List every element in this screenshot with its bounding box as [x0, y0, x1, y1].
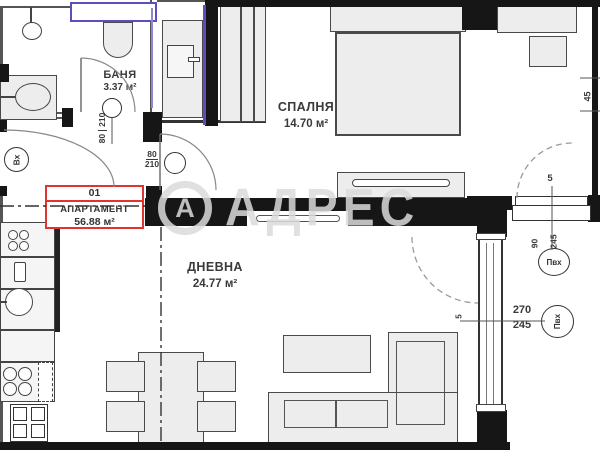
- wardrobe-door-handle: [188, 57, 200, 62]
- shaft-purple-rect: [70, 2, 157, 22]
- wall-bath-door-jamb: [62, 108, 73, 127]
- wardrobe-panel-line-1: [240, 4, 242, 122]
- apartment-type: АПАРТАМЕНТ: [47, 204, 142, 215]
- wardrobe-panel-line-2: [253, 4, 255, 122]
- apartment-label-box: 01 АПАРТАМЕНТ 56.88 м²: [45, 185, 144, 229]
- kitchen-fan-icon: [8, 241, 18, 251]
- coffee-table: [283, 335, 371, 373]
- sofa-cushion: [336, 400, 388, 428]
- wall-dim-45: 45: [584, 83, 597, 111]
- kitchen-divider-3: [0, 329, 55, 331]
- bedroom-door-circle: [164, 152, 186, 174]
- bed: [335, 32, 461, 136]
- bedroom-door-height: 210: [145, 160, 159, 169]
- side-window-material-circle: Пвх: [538, 248, 570, 276]
- wall-top-left-thin: [0, 6, 70, 8]
- balcony-door-cap: [476, 233, 506, 240]
- cabinet-cell: [31, 407, 45, 421]
- dining-table: [138, 352, 204, 443]
- living-name: ДНЕВНА: [185, 261, 245, 274]
- balcony-window-material-circle: Пвх: [541, 305, 574, 338]
- balcony-door-glass: [493, 243, 494, 404]
- bedroom-name: СПАЛНЯ: [274, 101, 338, 114]
- wall-top-closet-thin: [157, 0, 205, 2]
- entrance-circle: Вх: [4, 147, 29, 172]
- balcony-window-height: 245: [505, 320, 539, 332]
- balcony-window-width: 270: [505, 305, 539, 317]
- side-window-inner: [512, 205, 591, 221]
- sofa-chaise-cushion: [396, 341, 445, 425]
- wall-left-block: [0, 64, 9, 82]
- balcony-door-swing-arc: [412, 237, 478, 303]
- kitchen-divider-2: [0, 288, 55, 290]
- bathroom-name: БАНЯ: [92, 70, 148, 82]
- side-window-offset: 5: [543, 174, 557, 184]
- washing-machine-line: [0, 96, 15, 98]
- balcony-door-glass: [486, 243, 487, 404]
- balcony-door-frame: [478, 237, 480, 410]
- stove-burner: [18, 367, 32, 381]
- nightstand-unit: [497, 5, 577, 33]
- kitchen-divider-1: [0, 256, 55, 258]
- shaft-purple-line: [203, 5, 206, 125]
- wall-top: [205, 0, 600, 7]
- dining-chair: [106, 361, 145, 392]
- washing-machine-drum: [15, 83, 51, 111]
- wall-balcony-corner-a: [467, 196, 512, 210]
- entrance-label: Вх: [11, 154, 21, 165]
- dining-chair: [197, 401, 236, 432]
- sofa-cushion: [284, 400, 336, 428]
- bedroom-door-dims: 80 210: [140, 150, 164, 169]
- bedroom-window-swing-arc: [517, 143, 572, 198]
- shaft-purple-line-thin: [151, 8, 153, 108]
- apartment-number: 01: [47, 187, 142, 202]
- kitchen-fan-icon: [8, 230, 18, 240]
- floor-plan: БАНЯ 3.37 м² СПАЛНЯ 14.70 м² ДНЕВНА 24.7…: [0, 0, 600, 450]
- apartment-area: 56.88 м²: [47, 216, 142, 228]
- wall-bath-bedroom: [205, 0, 218, 126]
- wall-balcony-bottom: [477, 410, 507, 443]
- stove-burner: [3, 382, 17, 396]
- entrance-jamb-bottom: [0, 186, 7, 196]
- bathroom-door-width: 80: [98, 134, 107, 143]
- balcony-window-material: Пвх: [553, 314, 562, 329]
- entrance-jamb-top: [0, 120, 7, 132]
- dining-chair: [106, 401, 145, 432]
- dresser-slot: [352, 179, 450, 187]
- living-area: 24.77 м²: [186, 278, 244, 290]
- cabinet-cell: [13, 424, 27, 438]
- kitchen-fan-icon: [19, 241, 29, 251]
- kitchen-counter-edge: [55, 222, 60, 332]
- toilet-bowl: [103, 22, 133, 58]
- wardrobe-bedroom: [220, 4, 266, 122]
- bathroom-area: 3.37 м²: [92, 83, 148, 94]
- bathroom-door-circle: [102, 98, 122, 118]
- balcony-door-cap: [476, 404, 506, 412]
- stove-burner: [3, 367, 17, 381]
- wall-hall-block-a: [143, 112, 162, 142]
- bed-headboard: [330, 6, 466, 32]
- kitchen-fan-icon: [19, 230, 29, 240]
- stove-burner: [18, 382, 32, 396]
- bathroom-sink-stem: [30, 7, 32, 23]
- balcony-window-offset: 5: [456, 310, 467, 324]
- kitchen-sink: [5, 288, 33, 316]
- kitchen-fridge-icon: [14, 262, 26, 282]
- balcony-door-frame: [501, 237, 503, 410]
- kitchen-sink-tap: [0, 301, 7, 303]
- nightstand-table: [529, 36, 567, 67]
- kitchen-dashed-area: [38, 362, 53, 402]
- tv-niche-slot: [256, 215, 340, 222]
- bedroom-area: 14.70 м²: [276, 118, 336, 130]
- cabinet-cell: [13, 407, 27, 421]
- dining-chair: [197, 361, 236, 392]
- cabinet-cell: [31, 424, 45, 438]
- wall-top-pillar: [462, 0, 497, 30]
- bathroom-sink-icon: [22, 22, 42, 40]
- wall-bottom: [0, 442, 510, 450]
